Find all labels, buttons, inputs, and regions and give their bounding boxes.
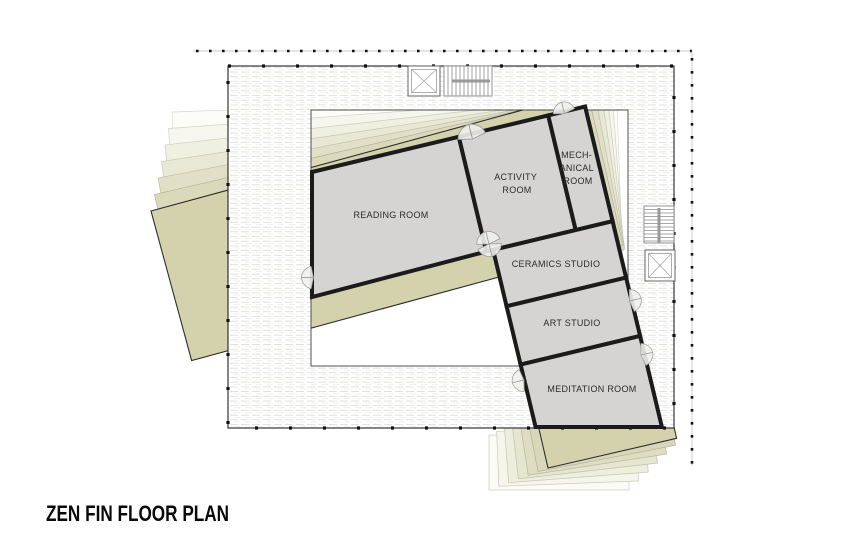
floor-plan-page: READING ROOM ACTIVITY ROOM MECH- ANICAL … xyxy=(0,0,848,548)
label-art-studio: ART STUDIO xyxy=(543,318,600,328)
label-ceramics-studio: CERAMICS STUDIO xyxy=(512,259,601,269)
elevator-icon xyxy=(645,250,675,281)
floor-plan-svg: READING ROOM ACTIVITY ROOM MECH- ANICAL … xyxy=(0,0,848,548)
plan-title: ZEN FIN FLOOR PLAN xyxy=(46,501,229,527)
stairs-icon xyxy=(444,66,492,96)
label-reading-room: READING ROOM xyxy=(353,210,428,220)
elevator-icon xyxy=(408,66,440,96)
label-mechanical-room: MECH- ANICAL ROOM xyxy=(560,150,597,186)
stairs-icon xyxy=(644,206,674,243)
label-meditation-room: MEDITATION ROOM xyxy=(547,384,636,394)
